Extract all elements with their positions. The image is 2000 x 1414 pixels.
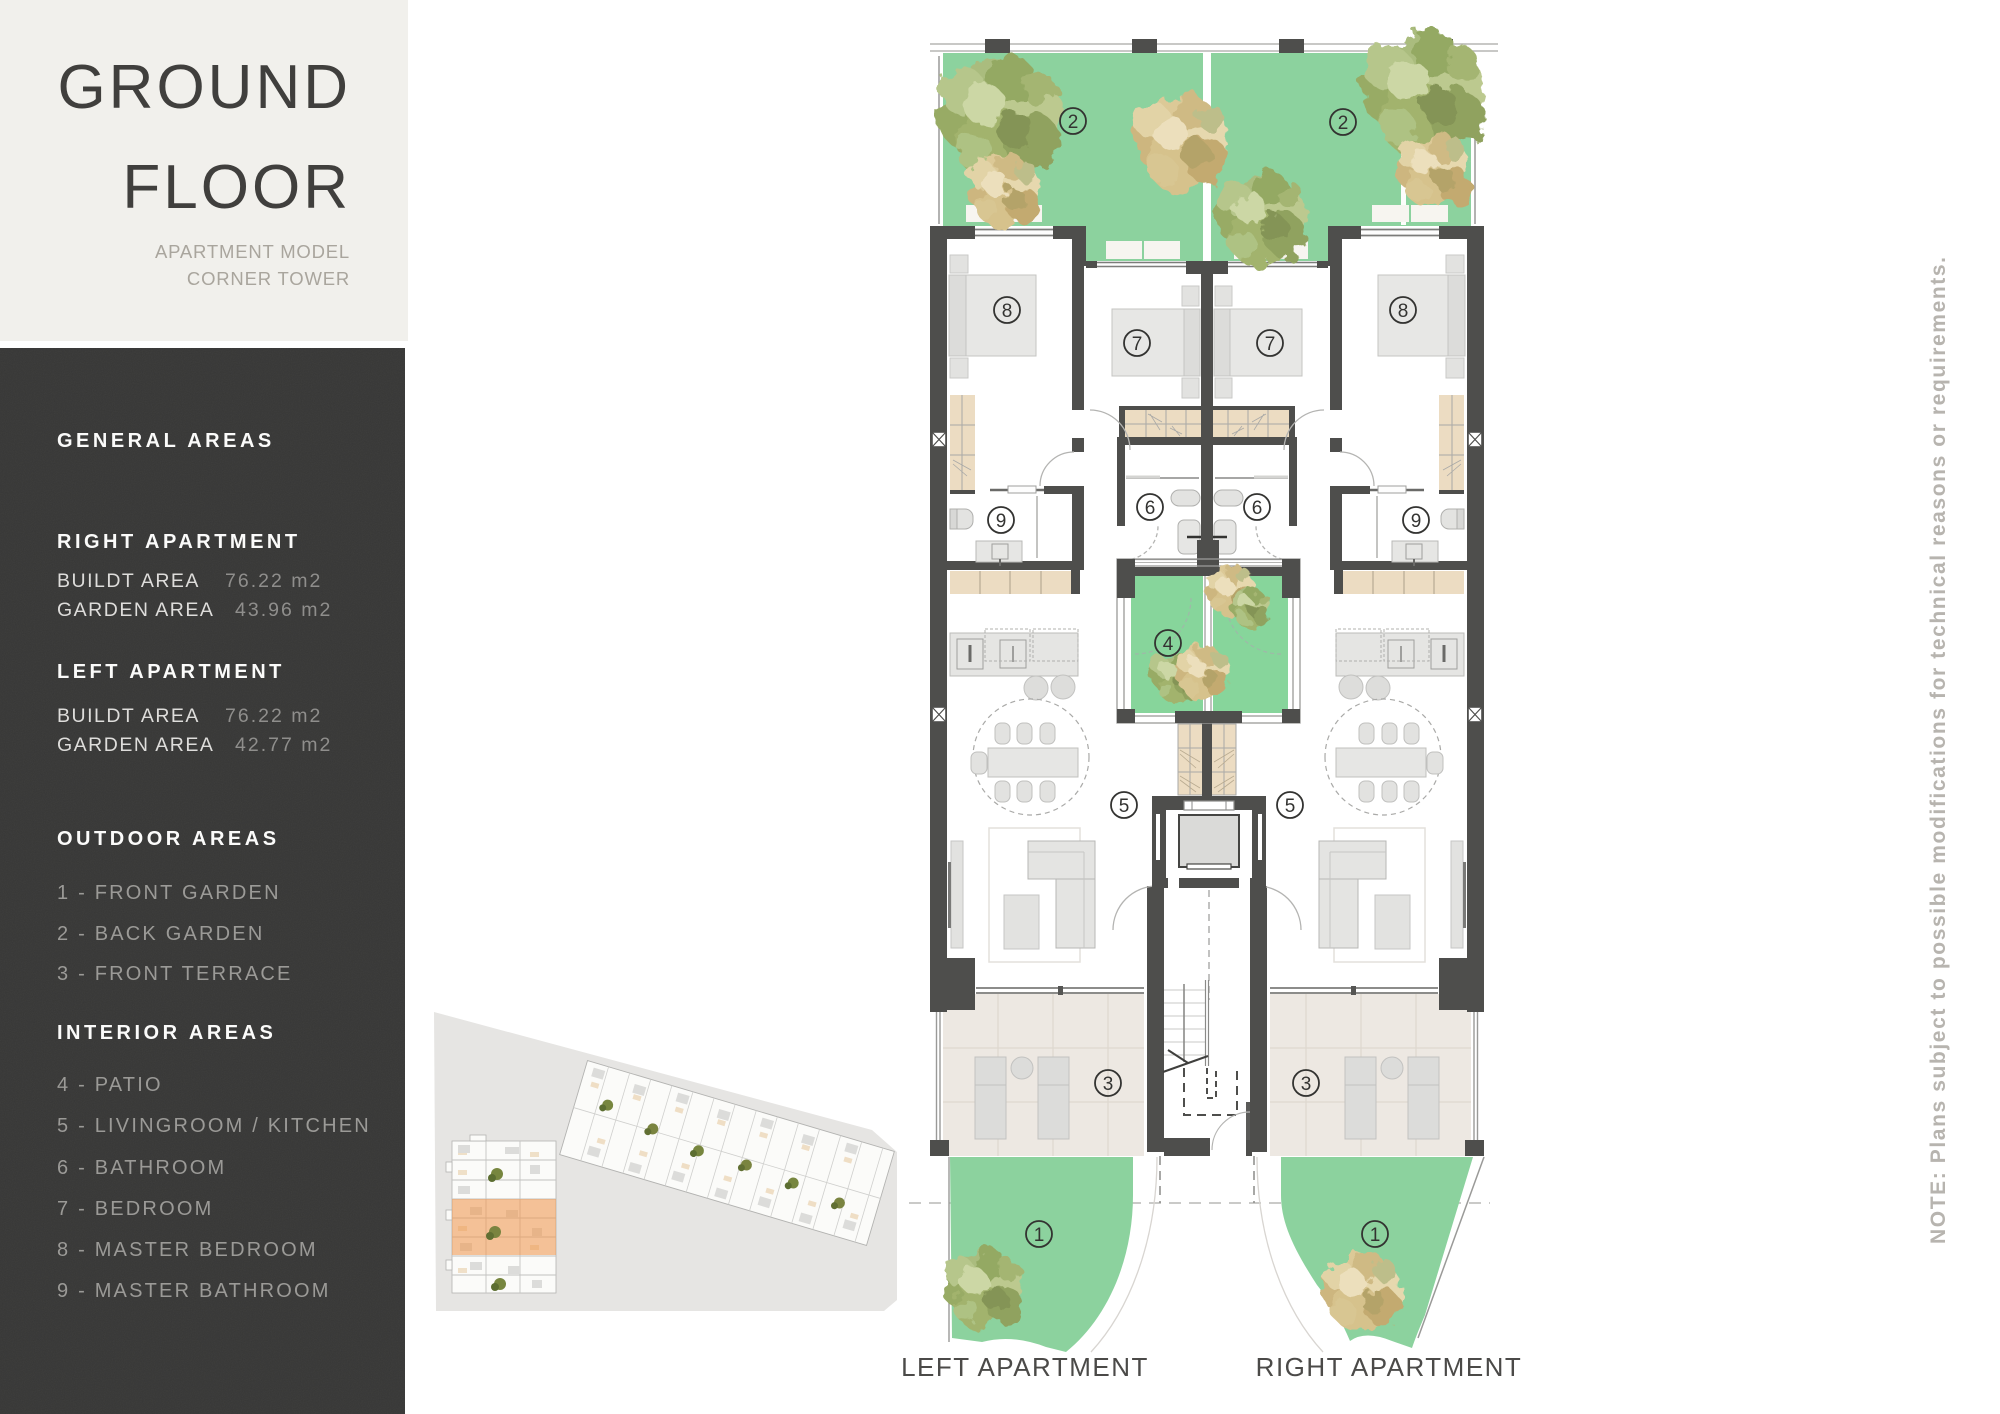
svg-text:8: 8	[1398, 301, 1409, 322]
svg-text:8 - MASTER BEDROOM: 8 - MASTER BEDROOM	[57, 1239, 318, 1261]
svg-text:7: 7	[1132, 334, 1143, 355]
svg-text:BUILDT AREA76.22 m2: BUILDT AREA76.22 m2	[57, 570, 322, 592]
svg-text:LEFT APARTMENT: LEFT APARTMENT	[901, 1352, 1149, 1382]
svg-text:1: 1	[1370, 1225, 1381, 1246]
svg-text:5: 5	[1119, 796, 1130, 817]
svg-text:7 - BEDROOM: 7 - BEDROOM	[57, 1198, 213, 1220]
svg-text:3: 3	[1301, 1074, 1312, 1095]
svg-text:CORNER TOWER: CORNER TOWER	[187, 268, 350, 289]
svg-text:APARTMENT MODEL: APARTMENT MODEL	[155, 241, 350, 262]
svg-text:OUTDOOR AREAS: OUTDOOR AREAS	[57, 828, 280, 850]
svg-text:NOTE: Plans subject to possibl: NOTE: Plans subject to possible modifica…	[1927, 255, 1950, 1244]
svg-text:LEFT APARTMENT: LEFT APARTMENT	[57, 661, 285, 683]
svg-text:9 - MASTER BATHROOM: 9 - MASTER BATHROOM	[57, 1280, 331, 1302]
svg-text:9: 9	[1411, 511, 1422, 532]
svg-text:7: 7	[1265, 334, 1276, 355]
svg-text:6 - BATHROOM: 6 - BATHROOM	[57, 1157, 226, 1179]
svg-text:FLOOR: FLOOR	[122, 153, 351, 222]
svg-text:2: 2	[1068, 112, 1079, 133]
svg-text:4 - PATIO: 4 - PATIO	[57, 1074, 163, 1096]
svg-text:9: 9	[996, 511, 1007, 532]
svg-text:RIGHT APARTMENT: RIGHT APARTMENT	[57, 531, 301, 553]
svg-text:BUILDT AREA76.22 m2: BUILDT AREA76.22 m2	[57, 705, 322, 727]
svg-text:3 - FRONT TERRACE: 3 - FRONT TERRACE	[57, 963, 293, 985]
svg-text:1 - FRONT GARDEN: 1 - FRONT GARDEN	[57, 882, 281, 904]
svg-text:RIGHT APARTMENT: RIGHT APARTMENT	[1256, 1352, 1523, 1382]
svg-text:5: 5	[1285, 796, 1296, 817]
svg-text:GARDEN AREA43.96 m2: GARDEN AREA43.96 m2	[57, 599, 332, 621]
svg-text:1: 1	[1034, 1225, 1045, 1246]
svg-text:6: 6	[1145, 498, 1156, 519]
svg-text:5 - LIVINGROOM / KITCHEN: 5 - LIVINGROOM / KITCHEN	[57, 1115, 371, 1137]
svg-text:INTERIOR AREAS: INTERIOR AREAS	[57, 1022, 276, 1044]
svg-text:GARDEN AREA42.77 m2: GARDEN AREA42.77 m2	[57, 734, 332, 756]
svg-text:GENERAL AREAS: GENERAL AREAS	[57, 430, 275, 452]
svg-text:GROUND: GROUND	[57, 53, 351, 122]
svg-text:4: 4	[1163, 634, 1174, 655]
svg-text:6: 6	[1252, 498, 1263, 519]
svg-text:8: 8	[1002, 301, 1013, 322]
svg-text:3: 3	[1103, 1074, 1114, 1095]
svg-text:2 - BACK GARDEN: 2 - BACK GARDEN	[57, 923, 264, 945]
svg-text:2: 2	[1338, 113, 1349, 134]
